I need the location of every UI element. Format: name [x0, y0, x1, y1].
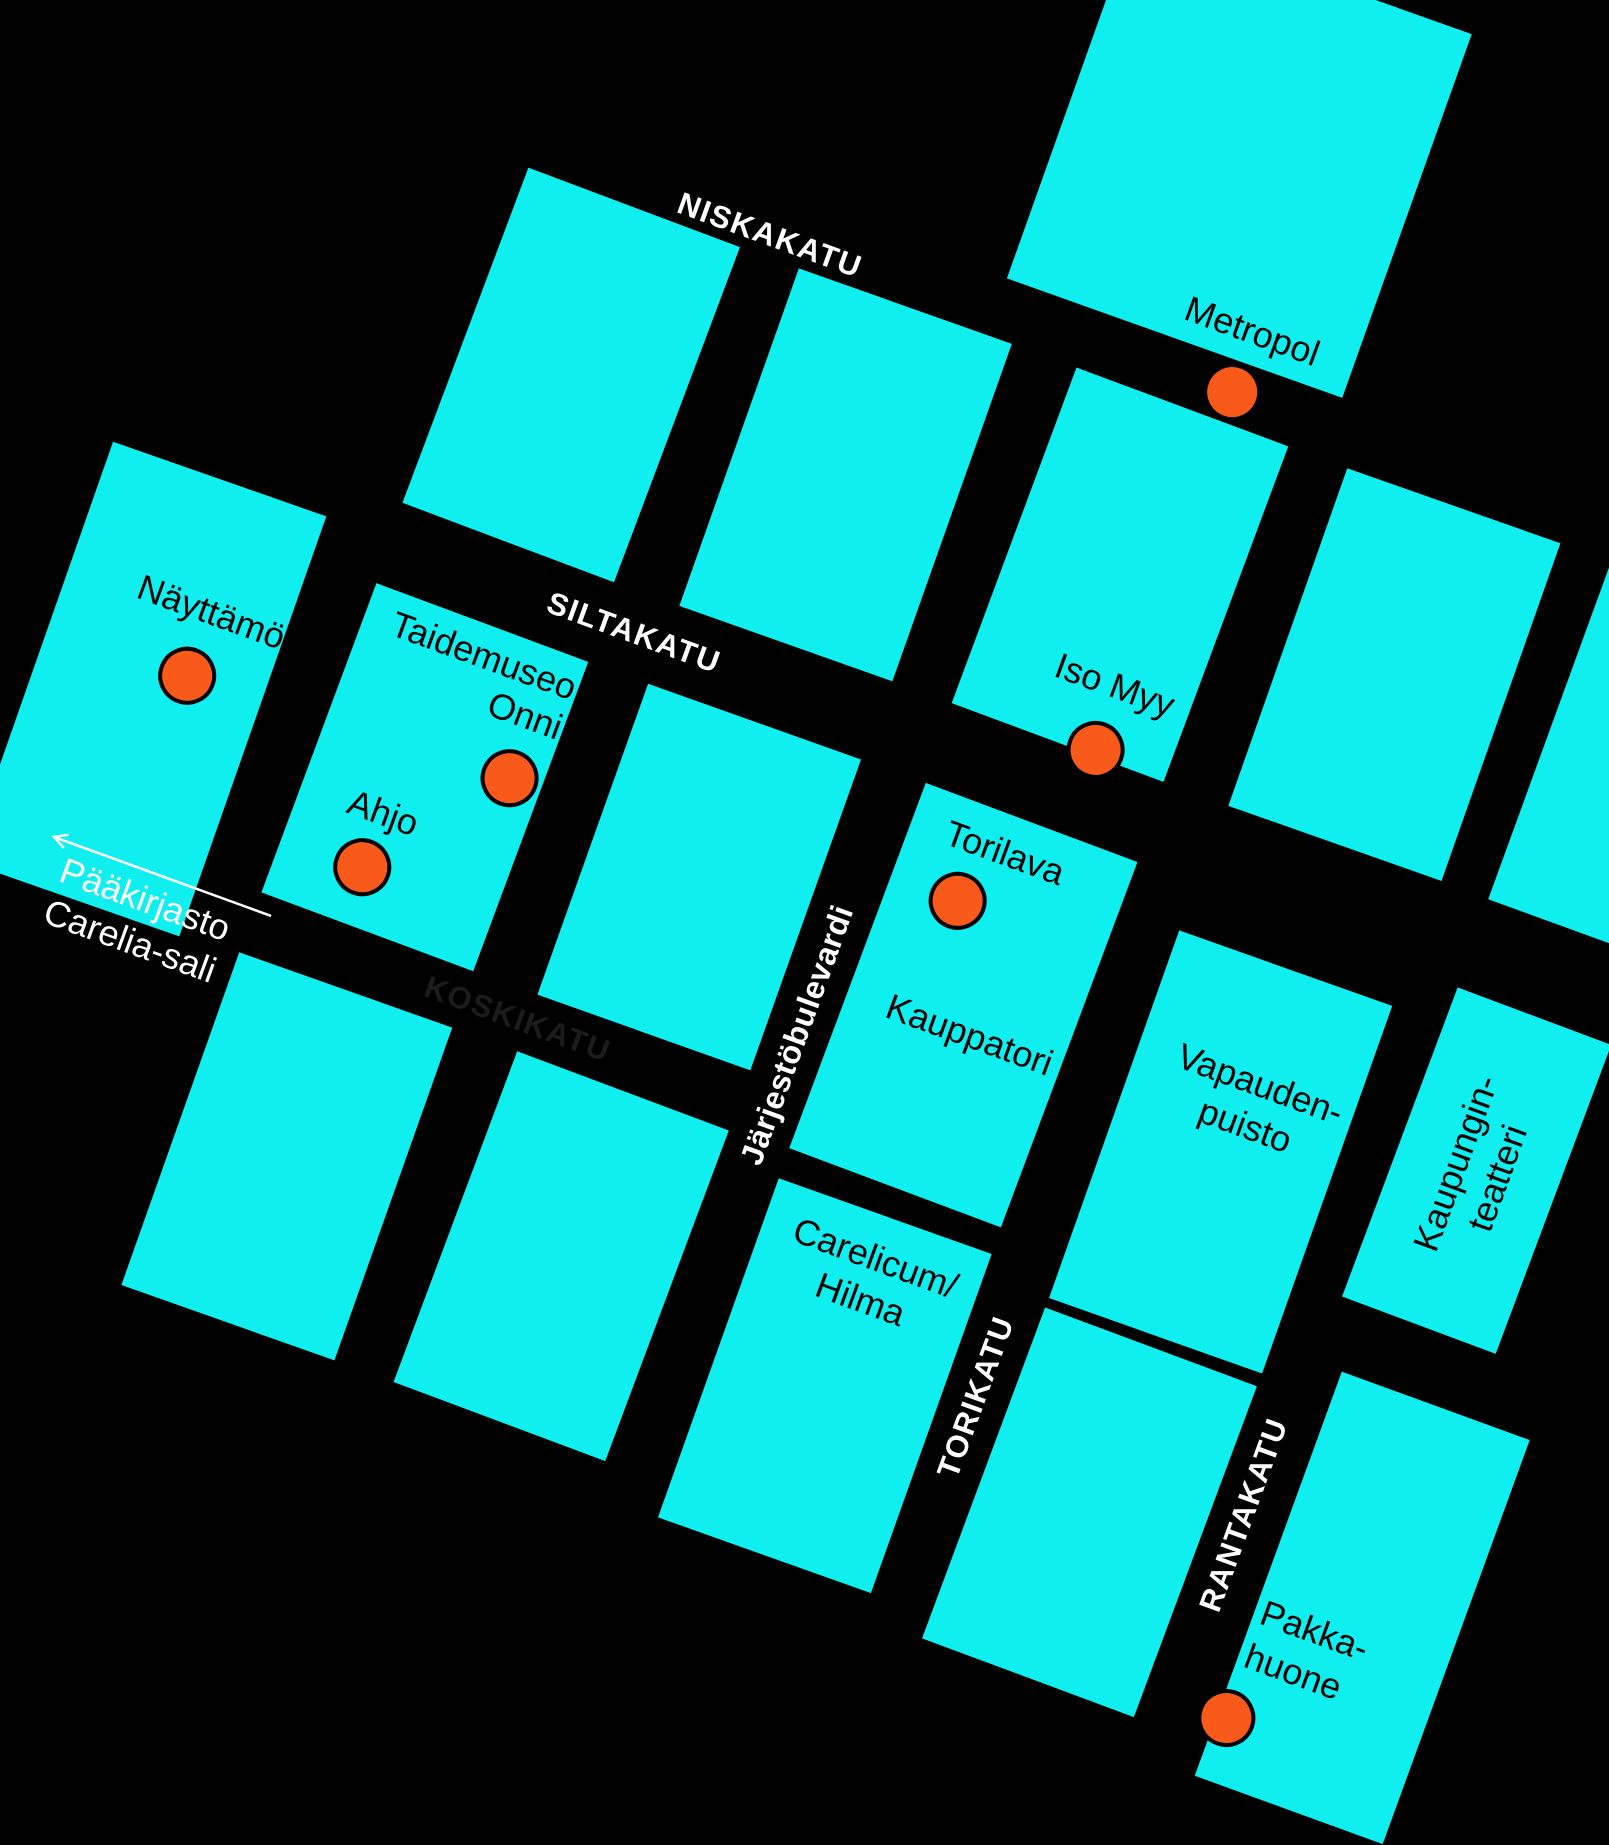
city-block-row3-col1	[121, 952, 452, 1360]
city-block-row1-col2	[679, 268, 1012, 681]
city-block-row1-col1	[402, 168, 740, 583]
city-block-row3-col2	[394, 1051, 729, 1461]
event-city-map: { "map_type": "stylized-city-grid-map", …	[0, 0, 1609, 1762]
city-block-pakkahuone	[1195, 1372, 1530, 1844]
city-block-iso-myy	[952, 368, 1289, 782]
city-block-row1-col4	[1228, 468, 1560, 881]
city-block-vapaudenpuisto	[1049, 930, 1392, 1373]
